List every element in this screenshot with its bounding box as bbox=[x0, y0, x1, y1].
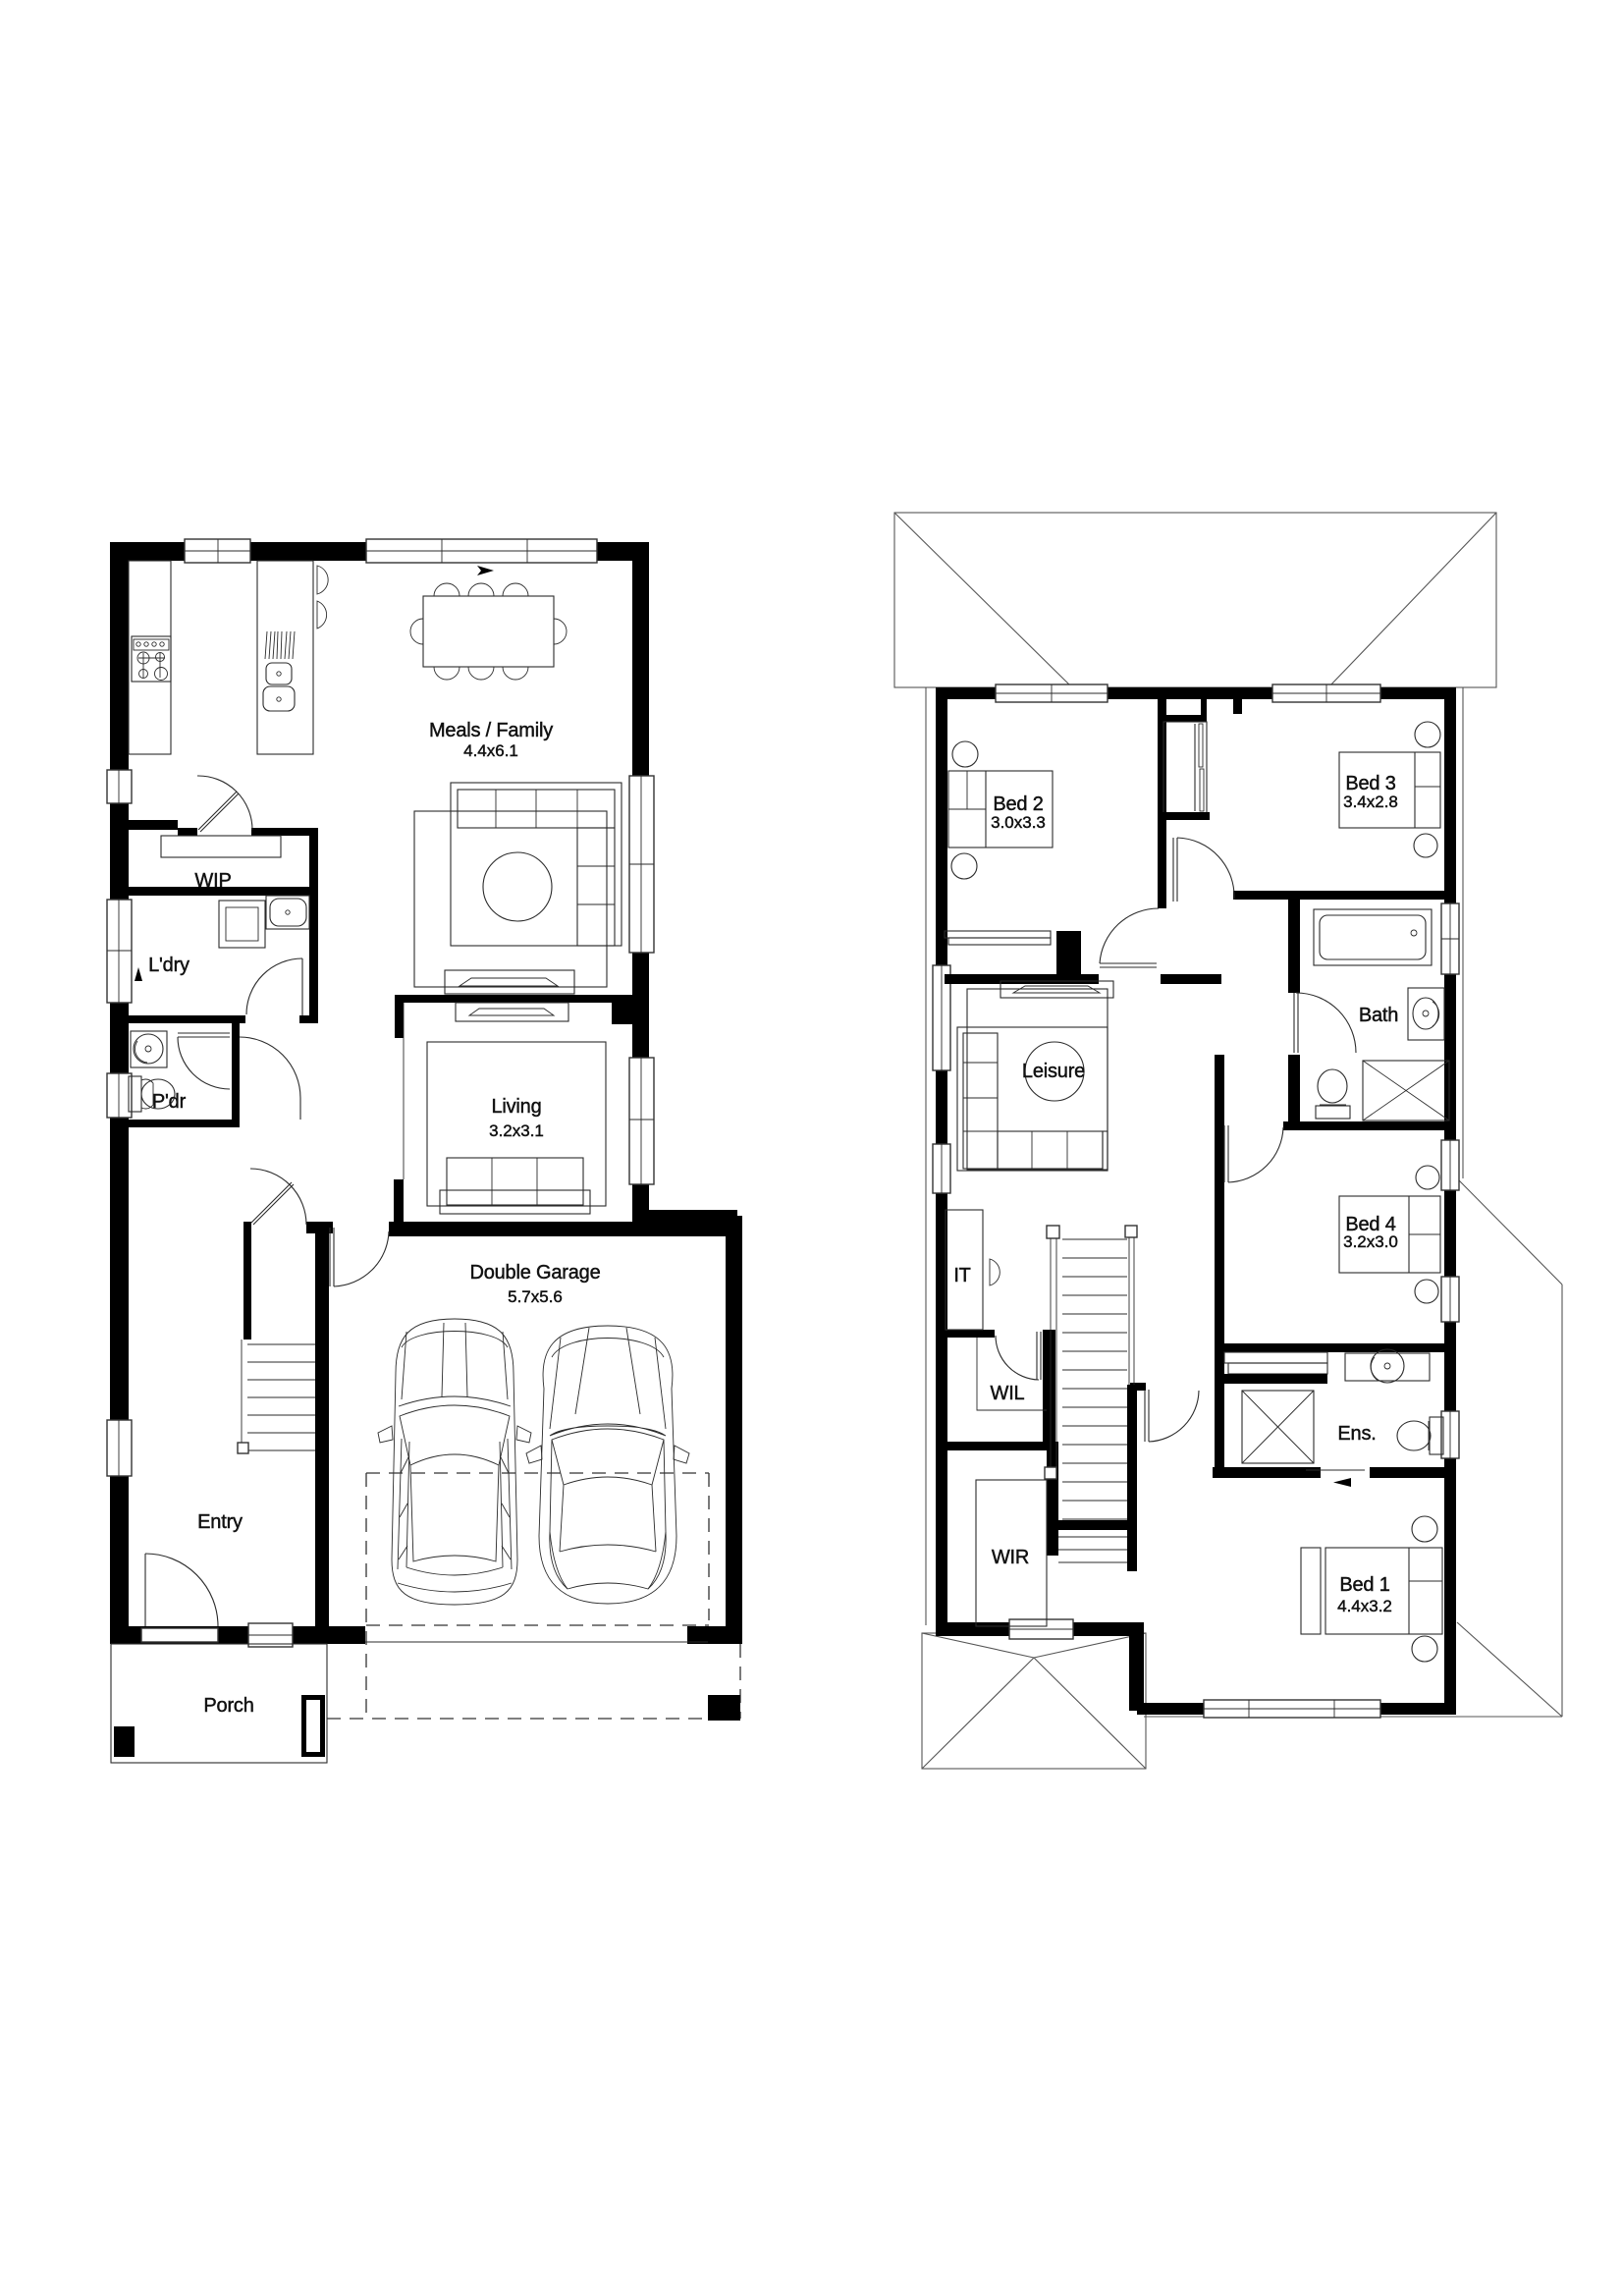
svg-text:3.4x2.8: 3.4x2.8 bbox=[1343, 793, 1398, 811]
svg-text:3.2x3.1: 3.2x3.1 bbox=[489, 1121, 544, 1140]
svg-text:IT: IT bbox=[953, 1265, 970, 1286]
svg-text:Entry: Entry bbox=[197, 1511, 243, 1533]
svg-text:Bed 2: Bed 2 bbox=[993, 793, 1043, 815]
svg-text:4.4x3.2: 4.4x3.2 bbox=[1337, 1597, 1392, 1615]
svg-text:Ens.: Ens. bbox=[1337, 1423, 1376, 1445]
svg-text:Double Garage: Double Garage bbox=[469, 1262, 600, 1284]
svg-text:Living: Living bbox=[491, 1096, 541, 1118]
svg-text:3.0x3.3: 3.0x3.3 bbox=[991, 813, 1046, 832]
svg-text:5.7x5.6: 5.7x5.6 bbox=[508, 1287, 563, 1306]
svg-text:Meals / Family: Meals / Family bbox=[429, 720, 553, 741]
svg-text:WIL: WIL bbox=[991, 1383, 1025, 1404]
svg-text:Bed 1: Bed 1 bbox=[1339, 1574, 1389, 1596]
svg-text:4.4x6.1: 4.4x6.1 bbox=[463, 741, 518, 760]
svg-text:Leisure: Leisure bbox=[1022, 1061, 1085, 1082]
svg-text:Porch: Porch bbox=[203, 1695, 253, 1717]
svg-text:L'dry: L'dry bbox=[148, 955, 189, 976]
svg-text:WIP: WIP bbox=[194, 870, 231, 892]
svg-text:Bath: Bath bbox=[1359, 1005, 1398, 1026]
svg-text:3.2x3.0: 3.2x3.0 bbox=[1343, 1232, 1398, 1251]
svg-text:Bed 3: Bed 3 bbox=[1345, 773, 1395, 794]
svg-text:P'dr: P'dr bbox=[152, 1091, 187, 1113]
svg-text:WIR: WIR bbox=[992, 1547, 1029, 1568]
